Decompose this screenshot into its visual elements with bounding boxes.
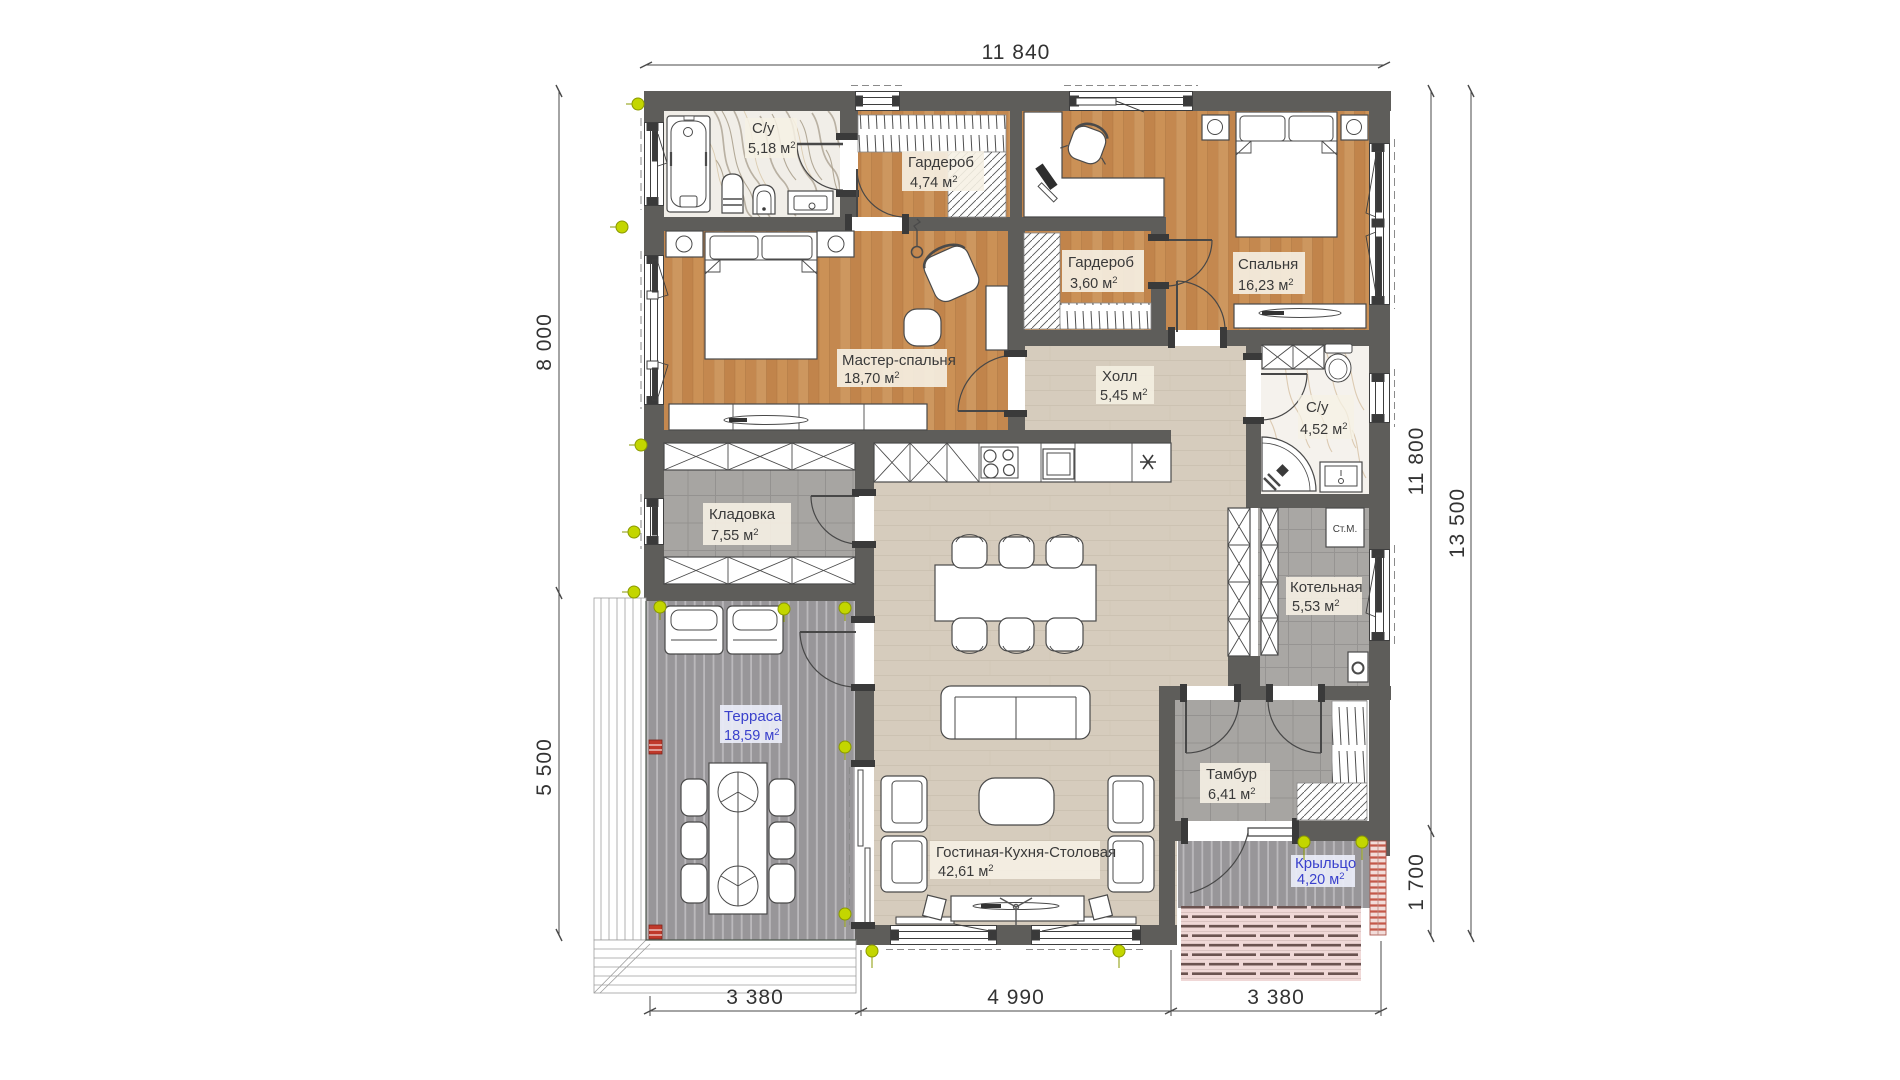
svg-text:Терраса: Терраса (724, 708, 782, 725)
svg-text:5,53 м2: 5,53 м2 (1292, 598, 1340, 615)
svg-text:4,20 м2: 4,20 м2 (1297, 871, 1345, 888)
svg-text:Спальня: Спальня (1238, 256, 1298, 273)
svg-text:5,18 м2: 5,18 м2 (748, 140, 796, 157)
svg-text:4 990: 4 990 (987, 986, 1045, 1009)
svg-text:13 500: 13 500 (1446, 488, 1469, 558)
svg-text:7,55 м2: 7,55 м2 (711, 527, 759, 544)
svg-text:5 500: 5 500 (533, 738, 556, 796)
svg-text:Котельная: Котельная (1290, 579, 1363, 596)
svg-text:Ст.М.: Ст.М. (1333, 524, 1358, 535)
svg-text:Гостиная-Кухня-Столовая: Гостиная-Кухня-Столовая (936, 844, 1116, 861)
svg-text:3 380: 3 380 (726, 986, 784, 1009)
svg-text:11 800: 11 800 (1405, 427, 1428, 496)
svg-text:16,23 м2: 16,23 м2 (1238, 277, 1294, 294)
svg-text:Холл: Холл (1102, 368, 1137, 385)
svg-text:С/у: С/у (1306, 399, 1329, 416)
svg-text:Кладовка: Кладовка (709, 506, 776, 523)
svg-text:18,59 м2: 18,59 м2 (724, 727, 780, 744)
svg-text:4,74 м2: 4,74 м2 (910, 174, 958, 191)
svg-text:С/у: С/у (752, 120, 775, 137)
svg-text:8 000: 8 000 (533, 313, 556, 371)
svg-text:42,61 м2: 42,61 м2 (938, 863, 994, 880)
svg-text:Тамбур: Тамбур (1206, 766, 1257, 783)
svg-text:4,52 м2: 4,52 м2 (1300, 421, 1348, 438)
svg-text:Гардероб: Гардероб (1068, 254, 1134, 271)
svg-text:6,41 м2: 6,41 м2 (1208, 786, 1256, 803)
svg-text:3 380: 3 380 (1247, 986, 1305, 1009)
svg-text:Гардероб: Гардероб (908, 154, 974, 171)
svg-text:1 700: 1 700 (1405, 853, 1428, 911)
svg-text:3,60 м2: 3,60 м2 (1070, 275, 1118, 292)
svg-text:11 840: 11 840 (982, 41, 1051, 64)
svg-text:5,45 м2: 5,45 м2 (1100, 387, 1148, 404)
svg-text:18,70 м2: 18,70 м2 (844, 370, 900, 387)
svg-text:Мастер-спальня: Мастер-спальня (842, 352, 956, 369)
